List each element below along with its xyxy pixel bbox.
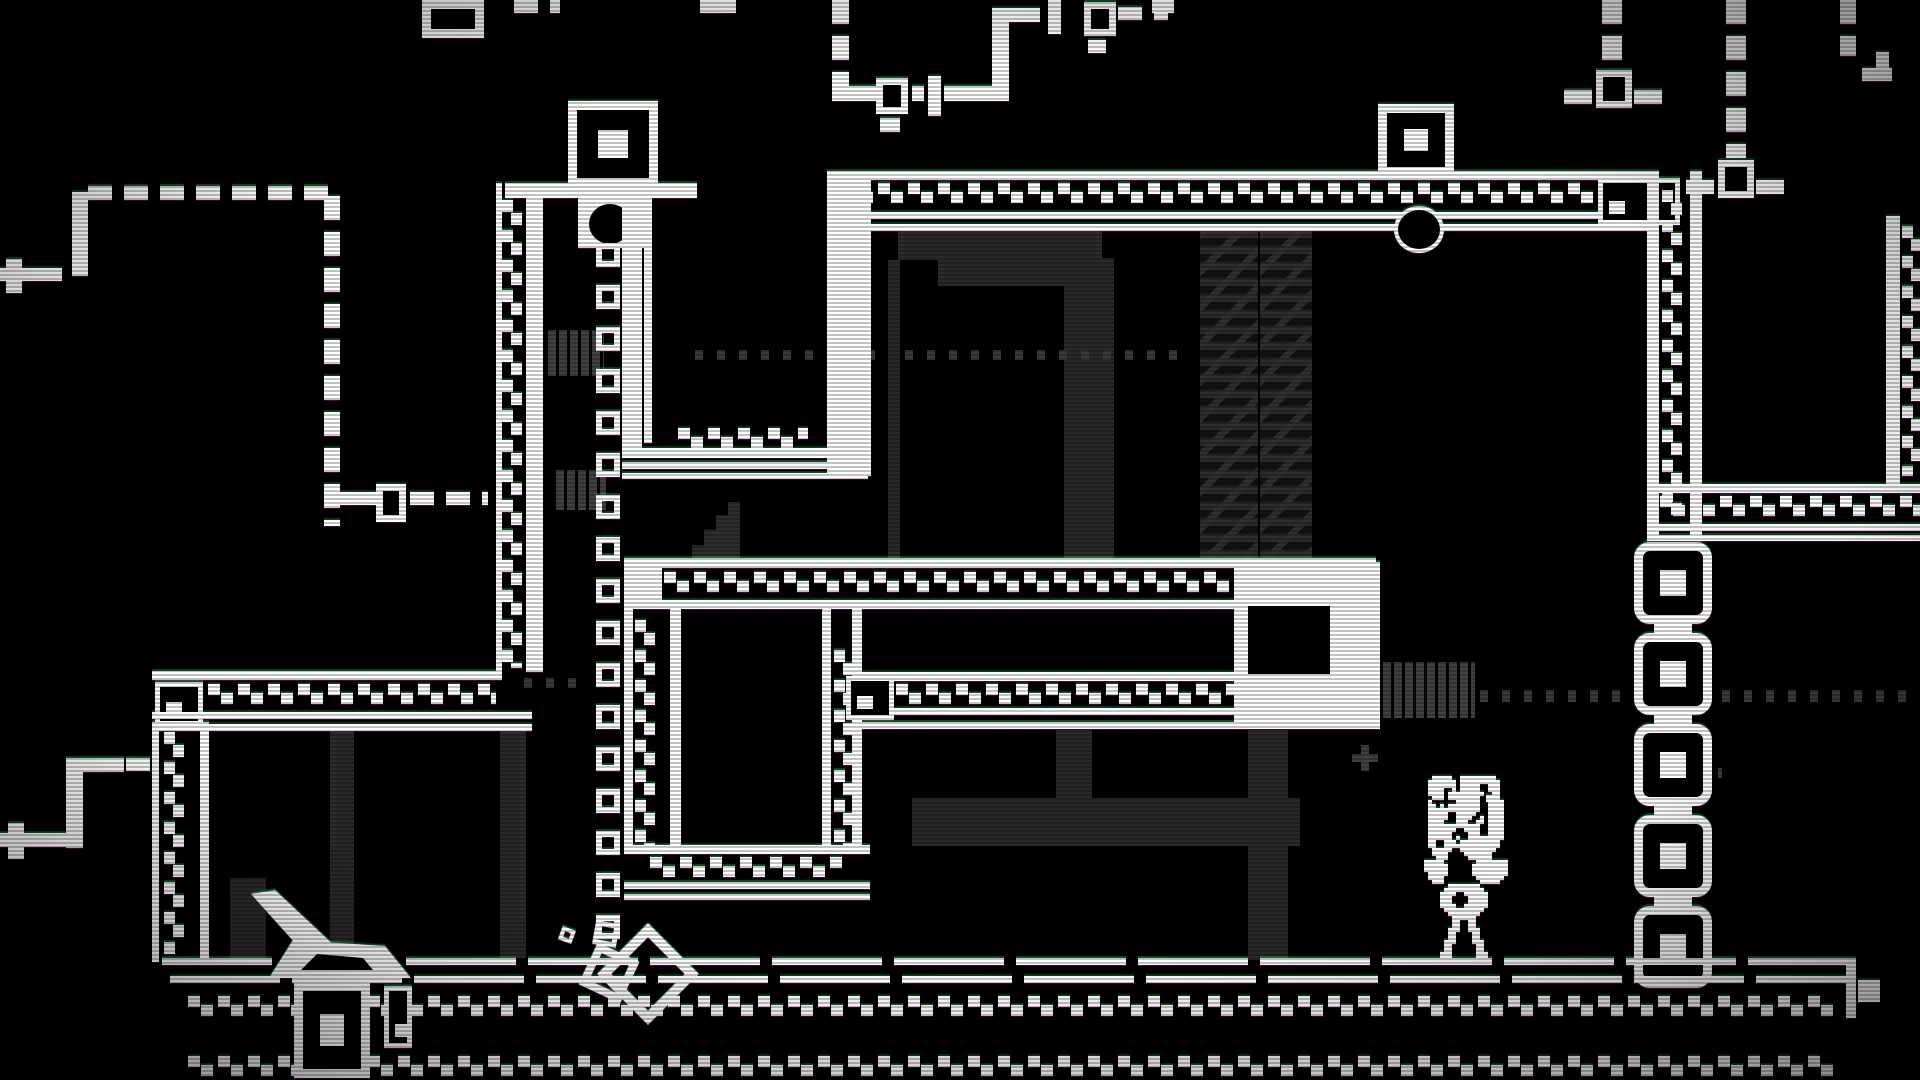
valve-hole-right (1394, 206, 1444, 253)
chain-link (1634, 724, 1712, 806)
pipe-top-dash-seg (912, 86, 924, 101)
hatch-core (1404, 129, 1428, 152)
left-platform-line1 (152, 712, 532, 719)
chain-link (1634, 815, 1712, 897)
player-mech-sprite (1424, 776, 1512, 960)
left-wall-edge-l (152, 722, 159, 962)
pipe-ne-wing-2l (1686, 180, 1714, 194)
hatch-core (598, 130, 628, 159)
track-square (596, 579, 620, 603)
right-shelf-line2 (1647, 535, 1920, 541)
pipe-nw-dash-down (324, 196, 340, 526)
pipe-ne-wing-1l (1564, 90, 1592, 104)
pipe-top-dash-1 (832, 0, 849, 96)
ring-bottom-surface (624, 845, 870, 854)
track-square (596, 369, 620, 393)
hatch-box-right (1378, 104, 1454, 176)
u-bottom-knobs (678, 428, 808, 448)
track-square (596, 327, 620, 351)
floor-end-cap (1846, 958, 1856, 1018)
chain-link-core (1660, 752, 1685, 779)
pipe-top-step-2 (1088, 40, 1106, 53)
pipe-ne-elbow-v (1876, 52, 1889, 80)
pipe-ne-dash-3 (1840, 0, 1856, 56)
chain-link (1634, 542, 1712, 624)
pipe-ne-junction-1 (1596, 70, 1632, 108)
pipe-top-junction-2 (1084, 2, 1116, 36)
track-square (596, 873, 620, 897)
pipe-ne-wing-2r (1756, 180, 1784, 194)
top-dash-left (514, 0, 560, 13)
chain-link-core (1660, 934, 1685, 961)
pickup-sparkle-1 (558, 926, 576, 944)
u-wall-left-inner (644, 183, 652, 443)
right-shelf-knobs (1660, 496, 1920, 518)
right-shelf-surface (1647, 484, 1920, 493)
left-platform-top (152, 671, 502, 680)
right-wall-steps (1662, 190, 1686, 520)
ring-left-wall-inner (670, 609, 681, 849)
chain-link-core (1660, 661, 1685, 688)
pipe-top-valve-1 (928, 76, 941, 116)
ring-bottom-line2 (624, 894, 870, 900)
pipe-nw-dash-right (410, 492, 488, 505)
top-hatch-stub (422, 0, 484, 38)
pipe-ne-dash-2 (1726, 0, 1746, 158)
pipe-west-h2 (66, 758, 124, 772)
chain-column (1634, 542, 1714, 988)
shaft-wall-bar (526, 183, 543, 672)
track-square (596, 285, 620, 309)
pipe-nw-riser (72, 192, 88, 276)
ring-left-wall-steps (635, 620, 657, 848)
ring-bottom-line1 (624, 882, 870, 889)
top-platform-line2 (827, 224, 1649, 231)
floor-support-panel (384, 986, 412, 1048)
panel-glyph (1609, 201, 1625, 214)
u-wall-left (622, 183, 642, 453)
top-platform-surface (827, 171, 1649, 180)
floor-end-block (1858, 980, 1880, 1002)
track-square (596, 243, 620, 267)
track-square (596, 537, 620, 561)
pipe-top-h2 (944, 86, 998, 101)
track-square (596, 663, 620, 687)
pipe-ne-wing-1r (1634, 90, 1662, 104)
pipe-nw-dash-top (88, 186, 338, 200)
chain-link (1634, 633, 1712, 715)
ring-left-wall-edge (624, 568, 633, 853)
chain-link-core (1660, 843, 1685, 870)
pipe-ne-dash-1 (1602, 0, 1622, 76)
ring-right-wall-inner (852, 609, 862, 849)
floor-knobs-lower (188, 1056, 1836, 1080)
track-square (596, 453, 620, 477)
debris-cannon (245, 890, 415, 982)
pipe-west-h (0, 833, 70, 847)
mid-lower-bar-panel (846, 676, 894, 720)
top-platform-knobs (848, 183, 1628, 205)
ring-bottom-knobs (650, 857, 842, 877)
foreground-structures-layer (0, 0, 1920, 1080)
mid-right-endcap-window (1248, 606, 1330, 674)
left-platform-panel (155, 682, 203, 726)
floor-rail-2 (170, 976, 1848, 983)
screen-edge-wall-steps (1902, 226, 1920, 476)
pipe-nw-h1 (0, 268, 62, 281)
panel-glyph (395, 1024, 411, 1037)
game-screen[interactable] (0, 0, 1920, 1080)
screen-edge-wall (1886, 216, 1900, 486)
chain-link-core (1660, 570, 1685, 597)
pipe-top-step-1 (880, 118, 900, 132)
track-square (596, 789, 620, 813)
ring-right-wall-edge (822, 609, 831, 851)
shaft-wall-steps (502, 200, 524, 668)
track-square (596, 411, 620, 435)
right-shelf-line1 (1647, 524, 1920, 531)
floor-support-box (294, 982, 370, 1078)
track-square-column (596, 243, 622, 943)
pipe-top-valve-2 (1048, 0, 1061, 34)
pipe-nw-junction (376, 484, 406, 522)
left-platform-knobs (208, 684, 496, 706)
pipe-top-h3 (992, 8, 1040, 22)
pipe-ne-junction-2 (1718, 160, 1754, 198)
track-square (596, 747, 620, 771)
pipe-top-junction-1 (876, 78, 908, 114)
track-square (596, 831, 620, 855)
track-square (596, 495, 620, 519)
pipe-nw-h2 (338, 492, 380, 505)
left-wall-edge-r (200, 722, 209, 962)
left-platform-line2 (152, 724, 532, 731)
floor-knobs (188, 996, 1836, 1020)
track-square (596, 705, 620, 729)
hatch-box-left (568, 101, 658, 187)
left-wall-steps (164, 732, 186, 954)
pipe-top-end (1152, 0, 1174, 13)
panel-glyph (857, 696, 873, 709)
top-dash-mid (700, 0, 736, 13)
track-square (596, 621, 620, 645)
top-platform-line1 (827, 212, 1649, 219)
hatch-core (320, 1014, 344, 1047)
